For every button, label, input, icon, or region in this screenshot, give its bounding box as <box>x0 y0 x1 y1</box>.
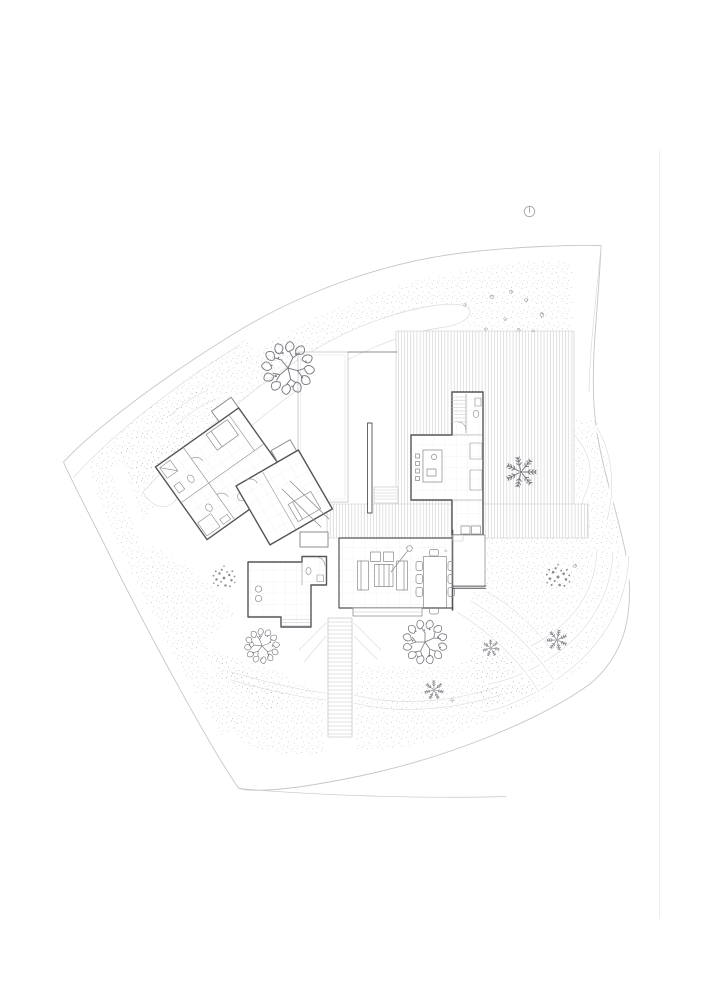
courtyard-steps <box>374 487 398 503</box>
court-platform <box>300 532 328 547</box>
blade-wall <box>368 423 373 513</box>
plan-sheet: Site plan — ground floor <box>0 0 706 1000</box>
stipple-bottom-left-blob <box>214 654 324 754</box>
deciduous-tree <box>393 610 456 673</box>
east-terrace-block <box>453 526 486 589</box>
sofa-right <box>397 561 408 590</box>
site-plan-drawing: Site plan — ground floor <box>0 0 706 1000</box>
garden-stair <box>328 618 352 737</box>
living-pavilion <box>339 526 486 616</box>
round-bush <box>213 566 236 588</box>
coffee-table <box>375 565 394 587</box>
garage-studio <box>248 557 327 628</box>
boundary-inner-slant <box>589 246 601 392</box>
north-arrow-icon <box>524 206 534 216</box>
sofa-left <box>358 561 369 590</box>
boundary-bottom-outer <box>239 789 506 798</box>
